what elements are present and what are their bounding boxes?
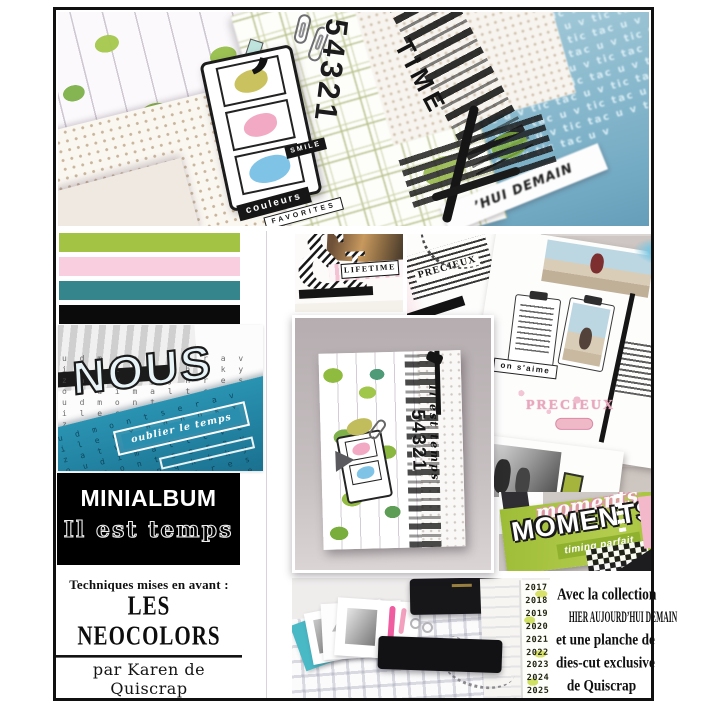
minialbum-cover: 54321 Il est temps xyxy=(318,350,465,550)
clipboard-journaling xyxy=(507,294,561,367)
nous-detail-photo: u d m o n t s e r a v i l e c x p q h b … xyxy=(58,325,263,471)
clipboard-photo xyxy=(557,297,615,373)
black-cover-bottom xyxy=(377,636,502,673)
dark-corner xyxy=(617,549,651,571)
open-album-photo: 2017 2018 2019 2020 2021 2022 2023 2024 … xyxy=(292,578,550,698)
column-divider xyxy=(266,231,267,698)
composition-frame: tic tac u v tic tac u v tic tac u v tic … xyxy=(53,7,654,701)
palette-swatch-pink xyxy=(59,257,240,276)
collection-note: Avec la collection HIER AUJOURD’HUI DEMA… xyxy=(552,584,651,698)
binder-ring xyxy=(410,618,421,629)
palette-swatch-teal xyxy=(59,281,240,300)
collection-note-line: et une planche de xyxy=(556,628,647,653)
collection-note-line: dies-cut exclusive xyxy=(556,651,647,676)
album-cover-photo: 54321 Il est temps xyxy=(292,315,494,573)
color-palette xyxy=(59,233,240,329)
countdown-numbers: 54321 xyxy=(408,409,429,472)
technique-name: LES NEOCOLORS xyxy=(56,599,242,650)
minialbum-title: MINIALBUM xyxy=(57,487,240,510)
minialbum-banner: MINIALBUM Il est temps xyxy=(57,473,240,565)
collection-note-line: de Quiscrap xyxy=(556,674,647,699)
swatch-pink xyxy=(225,99,296,151)
top-photo-art-journal: tic tac u v tic tac u v tic tac u v tic … xyxy=(58,12,649,226)
pink-dots xyxy=(507,382,592,434)
mini-swatch-blue xyxy=(349,460,382,485)
moments-detail-photo: moments MOMENTS timing parfait xyxy=(499,492,651,571)
palette-swatch-green xyxy=(59,233,240,252)
palette-swatch-black xyxy=(59,305,240,324)
binder-ring xyxy=(422,622,433,633)
ampersand-detail-photo: & LIFETIME xyxy=(295,234,403,312)
journaling-lines xyxy=(515,304,554,354)
years-strip: 2017 2018 2019 2020 2021 2022 2023 2024 … xyxy=(519,580,550,698)
author-credit: par Karen de Quiscrap xyxy=(56,660,242,698)
promo-page: tic tac u v tic tac u v tic tac u v tic … xyxy=(0,0,709,709)
minialbum-subtitle: Il est temps xyxy=(57,519,240,541)
swatch-olive xyxy=(216,55,287,107)
